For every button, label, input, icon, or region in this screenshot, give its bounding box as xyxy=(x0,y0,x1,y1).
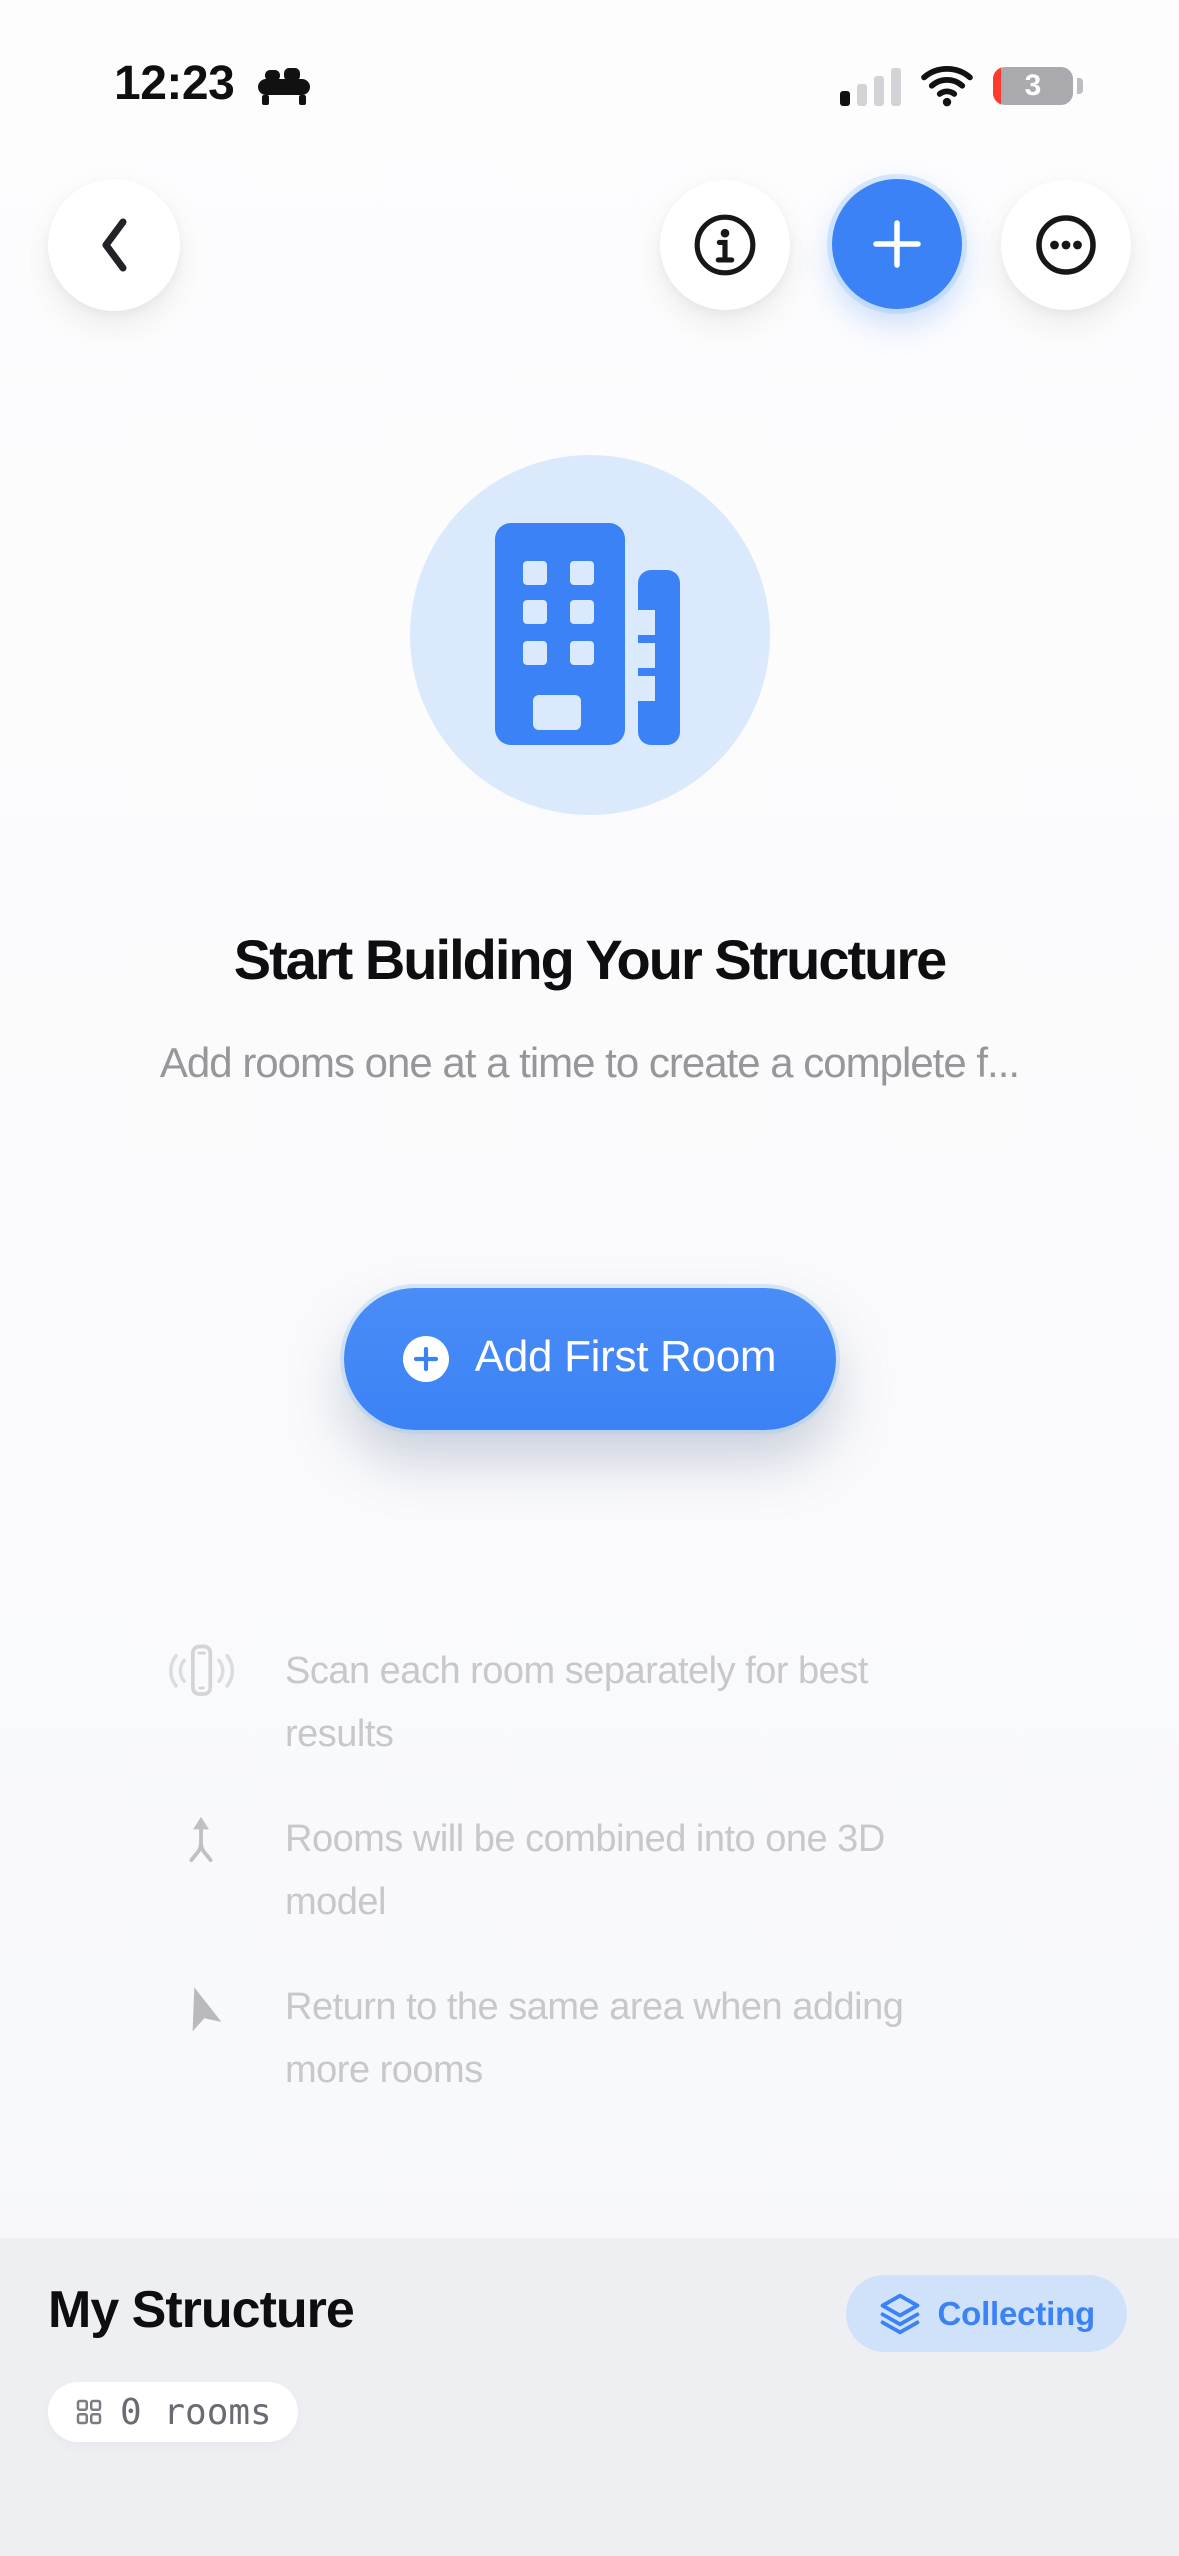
battery-cap xyxy=(1077,78,1083,94)
location-arrow-icon xyxy=(161,1976,241,2039)
building-illustration xyxy=(410,455,770,815)
more-options-button[interactable] xyxy=(1001,180,1131,310)
merge-arrow-icon xyxy=(161,1808,241,1871)
status-bar: 12:23 3 xyxy=(0,0,1179,130)
hint-row: Scan each room separately for best resul… xyxy=(161,1640,965,1766)
cellular-signal-icon xyxy=(840,66,901,106)
back-button[interactable] xyxy=(48,179,180,311)
layers-icon xyxy=(878,2292,922,2336)
hint-row: Return to the same area when adding more… xyxy=(161,1976,965,2102)
hint-text: Return to the same area when adding more… xyxy=(285,1976,965,2102)
page-title: Start Building Your Structure xyxy=(0,925,1179,995)
hints-list: Scan each room separately for best resul… xyxy=(161,1640,965,2102)
plus-circle-icon xyxy=(403,1336,449,1382)
structure-title: My Structure xyxy=(48,2278,354,2342)
status-badge-label: Collecting xyxy=(937,2295,1095,2333)
screen: 12:23 3 xyxy=(0,0,1179,2556)
add-button[interactable] xyxy=(832,179,962,309)
structure-summary-bar: My Structure Collecting 0 rooms xyxy=(0,2238,1179,2556)
wifi-icon xyxy=(919,65,975,107)
phone-vibrate-icon xyxy=(161,1640,241,1703)
clock: 12:23 xyxy=(114,56,234,112)
status-icons: 3 xyxy=(840,64,1083,108)
rooms-count-label: 0 rooms xyxy=(120,2392,272,2433)
hint-text: Rooms will be combined into one 3D model xyxy=(285,1808,965,1934)
building-icon xyxy=(495,523,685,748)
hint-row: Rooms will be combined into one 3D model xyxy=(161,1808,965,1934)
plus-icon xyxy=(868,215,926,273)
bed-icon xyxy=(258,66,310,106)
add-first-room-label: Add First Room xyxy=(475,1335,776,1383)
collecting-status-badge: Collecting xyxy=(846,2275,1127,2352)
chevron-left-icon xyxy=(97,216,131,274)
battery-icon: 3 xyxy=(993,67,1073,105)
battery-low-fill xyxy=(993,67,1001,105)
rooms-count-chip: 0 rooms xyxy=(48,2382,298,2442)
info-button[interactable] xyxy=(660,180,790,310)
battery-percent: 3 xyxy=(1025,67,1042,105)
info-icon xyxy=(691,211,759,279)
hint-text: Scan each room separately for best resul… xyxy=(285,1640,965,1766)
add-first-room-button[interactable]: Add First Room xyxy=(344,1288,836,1430)
page-subtitle: Add rooms one at a time to create a comp… xyxy=(0,1032,1179,1094)
ellipsis-circle-icon xyxy=(1033,212,1099,278)
grid-icon xyxy=(74,2397,104,2427)
